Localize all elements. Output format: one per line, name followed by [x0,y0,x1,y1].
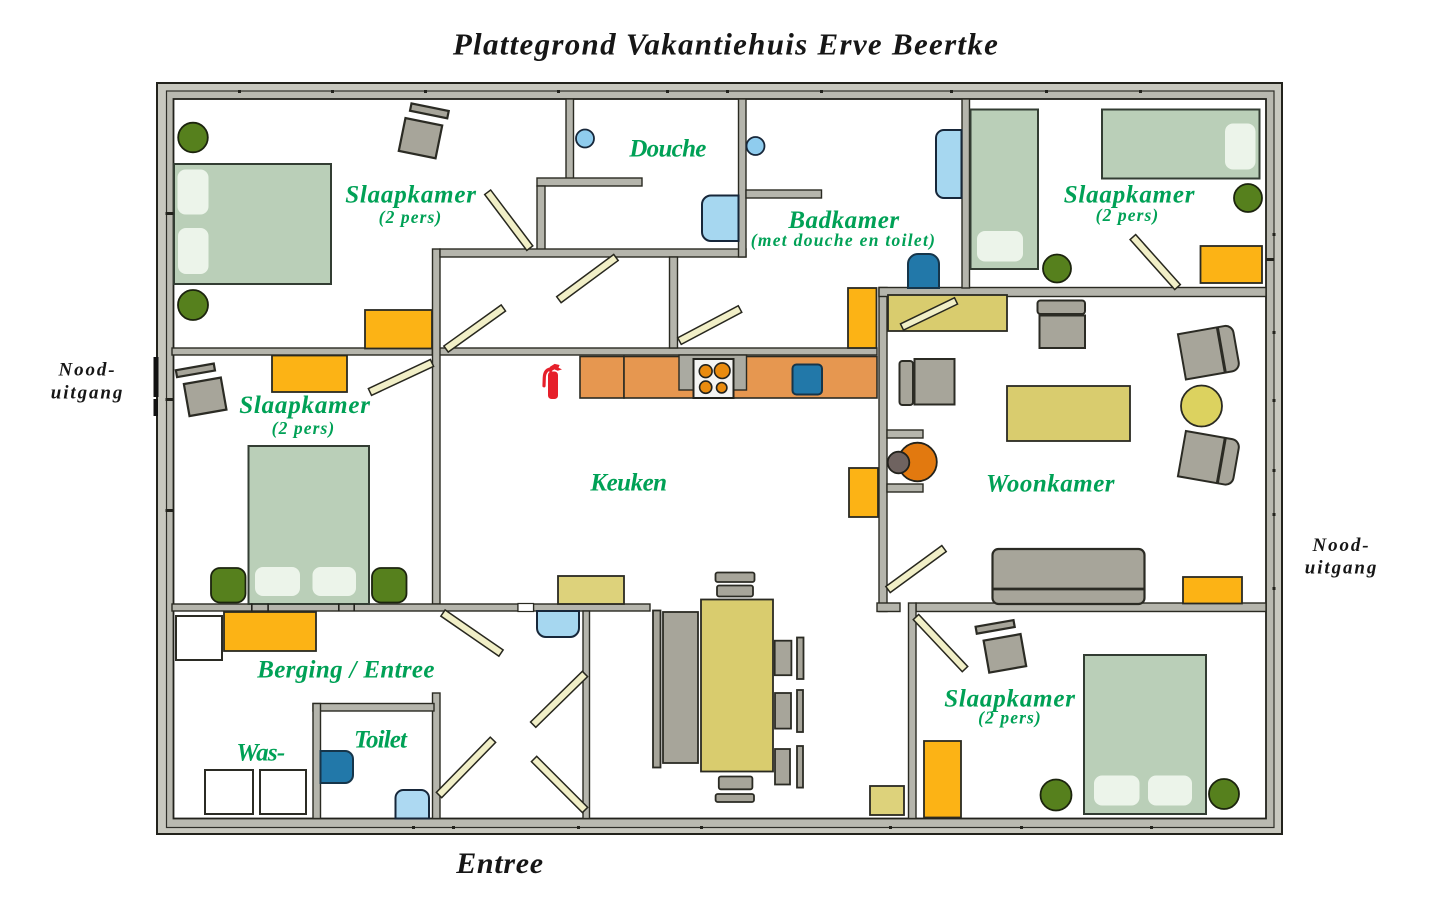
svg-text:Slaapkamer: Slaapkamer [239,392,371,419]
svg-text:uitgang: uitgang [51,383,125,404]
svg-text:Toilet: Toilet [354,727,408,754]
svg-text:(2 pers): (2 pers) [978,707,1042,727]
svg-text:(met douche en toilet): (met douche en toilet) [751,230,937,250]
svg-text:Entree: Entree [455,847,544,880]
svg-text:Slaapkamer: Slaapkamer [345,181,477,208]
svg-text:Douche: Douche [628,135,706,162]
svg-text:Was-: Was- [236,740,285,767]
svg-text:Keuken: Keuken [589,470,666,497]
svg-text:Berging / Entree: Berging / Entree [256,657,435,684]
svg-text:Woonkamer: Woonkamer [986,470,1115,497]
svg-text:Plattegrond Vakantiehuis Erve: Plattegrond Vakantiehuis Erve Beertke [452,27,999,62]
svg-text:Nood-: Nood- [1311,535,1370,556]
svg-text:Nood-: Nood- [57,360,116,381]
svg-text:uitgang: uitgang [1305,558,1379,579]
svg-text:(2 pers): (2 pers) [379,207,443,227]
svg-text:(2 pers): (2 pers) [1096,205,1160,225]
svg-text:(2 pers): (2 pers) [272,418,336,438]
